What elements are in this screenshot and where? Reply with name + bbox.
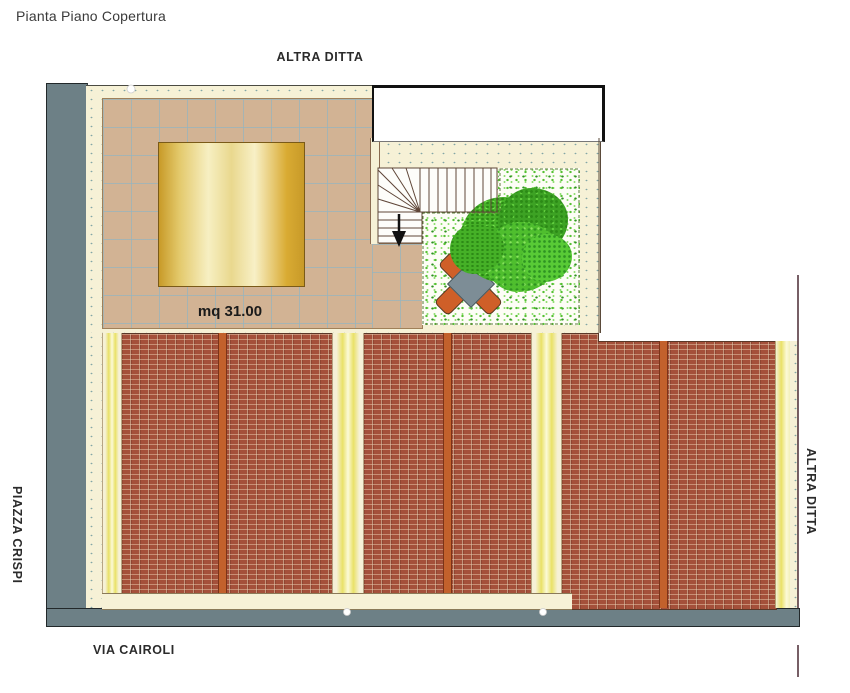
roof-ridge [443, 333, 452, 593]
left-border-band [86, 333, 102, 608]
roof-ridge [218, 333, 227, 593]
roof-setback-edge [598, 333, 777, 342]
tree-canopy [522, 234, 572, 282]
plan-title: Pianta Piano Copertura [16, 8, 166, 24]
label-via-cairoli: VIA CAIROLI [93, 643, 175, 657]
skylight-area-label: mq 31.00 [170, 303, 290, 320]
roof-valley-strip [332, 333, 364, 593]
label-piazza-crispi: PIAZZA CRISPI [10, 486, 24, 616]
perimeter-wall-piazza-crispi [46, 83, 88, 627]
roof-valley-strip [102, 333, 122, 593]
roof-valley-strip [531, 333, 562, 593]
roof-section-3 [560, 333, 777, 610]
neighbor-building [372, 85, 605, 142]
stair-landing-tiles [372, 243, 423, 329]
label-altra-ditta-top: ALTRA DITTA [245, 50, 395, 64]
perimeter-wall-via-cairoli [46, 608, 800, 627]
roof-section-1 [120, 333, 334, 595]
right-border-band [790, 341, 798, 608]
roof-ridge [659, 341, 668, 608]
stair-flight-lower [378, 212, 422, 243]
bottom-cornice-band [102, 593, 572, 610]
roof-plan-drawing: Pianta Piano Copertura mq 31.00 [0, 0, 850, 693]
tree [450, 182, 578, 302]
label-altra-ditta-right: ALTRA DITTA [804, 448, 818, 578]
skylight [158, 142, 305, 287]
